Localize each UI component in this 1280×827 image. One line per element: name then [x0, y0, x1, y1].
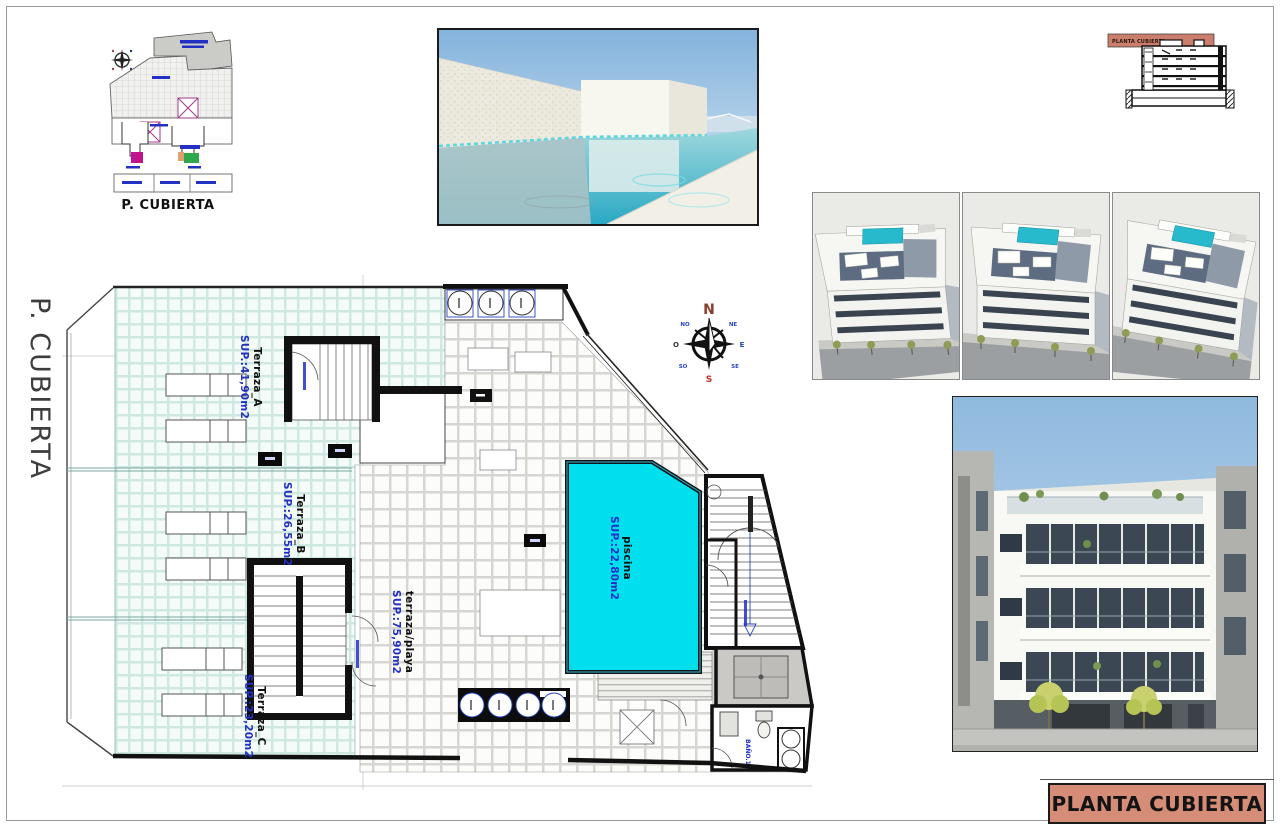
terraza-b-area: SUP.:26,55m2 — [281, 482, 293, 566]
section-band-label: PLANTA CUBIERTA — [1112, 39, 1166, 45]
aerial-render-center — [962, 192, 1110, 380]
compass-ne: NE — [729, 322, 738, 328]
compass-o: O — [673, 341, 679, 349]
piscina-area: SUP.:22,80m2 — [608, 516, 620, 600]
compass-e: E — [740, 341, 745, 349]
section-diagram: PLANTA CUBIERTA — [1098, 28, 1238, 112]
stair-a — [284, 336, 380, 422]
stair-main — [706, 476, 803, 648]
compass-no: NO — [680, 322, 690, 328]
terraza-a-name: Terraza_A — [251, 347, 263, 407]
plan-sheet: P. CUBIERTA P. CUBIERTA — [0, 0, 1280, 827]
main-floor-plan: BAÑO.1 Terraza_A SUP.:41,90m2 Terraza_B … — [60, 275, 815, 790]
facade-floors — [1000, 524, 1210, 700]
compass-n: N — [703, 302, 715, 318]
title-block: PLANTA CUBIERTA — [1048, 783, 1266, 824]
compass-se: SE — [731, 364, 739, 370]
margin-plan-label: P. CUBIERTA — [24, 297, 55, 480]
bathroom: BAÑO.1 — [712, 706, 812, 770]
piscina-name: piscina — [621, 536, 633, 580]
terraza-c-name: Terraza_C — [255, 686, 267, 745]
terraza-b-name: Terraza_B — [294, 494, 306, 553]
elevator — [716, 648, 812, 706]
key-plan — [92, 26, 242, 198]
compass-s: S — [706, 375, 712, 385]
terraza-c-area: SUP.:23,20m2 — [242, 674, 254, 758]
roof-units-bottom — [458, 688, 570, 722]
key-plan-caption: P. CUBIERTA — [98, 198, 238, 213]
terraza-playa-name: terraza/playa — [403, 591, 415, 673]
pool-render — [437, 28, 759, 226]
aerial-render-left — [812, 192, 960, 380]
aerial-render-right — [1112, 192, 1260, 380]
title-block-top-rule — [1040, 779, 1274, 780]
sheet-title: PLANTA CUBIERTA — [1052, 792, 1263, 816]
shower-pad — [620, 710, 654, 744]
terraza-a-area: SUP.:41,90m2 — [238, 335, 250, 419]
key-plan-compass-icon — [111, 49, 133, 71]
facade-render — [952, 396, 1258, 752]
compass-so: SO — [679, 364, 688, 370]
bano-label: BAÑO.1 — [744, 739, 751, 765]
compass-rose-icon: N S E O NE NO SE SO — [673, 302, 745, 385]
terraza-playa-area: SUP.:75,90m2 — [390, 590, 402, 674]
